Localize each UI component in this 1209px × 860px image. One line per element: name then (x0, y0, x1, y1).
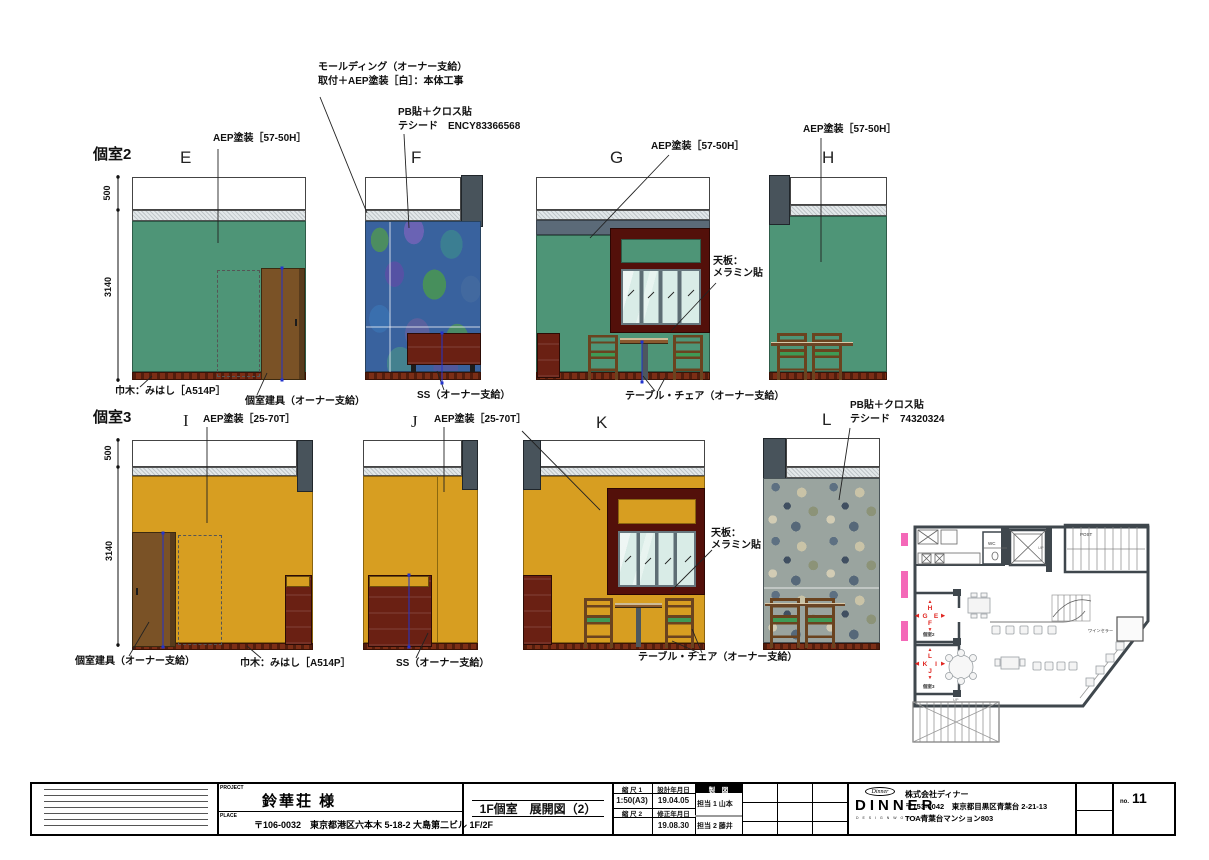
elevation-letter-f: F (411, 148, 421, 168)
scale1-value: 1:50(A3) (612, 793, 652, 808)
dim-500-room3: 500 (103, 445, 113, 460)
elevation-j (363, 440, 478, 650)
elevation-letter-k: K (596, 413, 607, 433)
staff1: 担当 1 山本 (695, 793, 742, 815)
column (462, 440, 478, 490)
window-glass (618, 531, 696, 587)
aep-note-g: AEP塗装［57-50H］ (651, 140, 744, 153)
elevation-letter-h: H (822, 148, 834, 168)
door-handle (295, 319, 297, 326)
divider (742, 784, 743, 834)
tall-cabinet (523, 575, 552, 645)
elevation-letter-i: I (183, 411, 189, 431)
table-pedestal (636, 608, 641, 647)
room2-section-label: 個室2 (93, 143, 131, 164)
elevation-letter-g: G (610, 148, 623, 168)
interior-window (607, 488, 705, 595)
scale2-label: 縮 尺 2 (612, 808, 652, 817)
project-label: PROJECT (220, 785, 244, 791)
revision-line (44, 819, 208, 820)
plan-up-label-2: UP (953, 697, 959, 702)
divider (1075, 784, 1077, 834)
revision-line (44, 813, 208, 814)
chair (588, 335, 618, 380)
elevation-letter-e: E (180, 148, 191, 168)
column (461, 175, 483, 227)
skirting (365, 372, 481, 380)
marker-arrow-left-room2: ◀ (914, 613, 919, 619)
plan-room3-label: 個室3 (922, 683, 935, 690)
ceiling-band (523, 440, 705, 467)
molding-note-line1: モールディング（オーナー支給） (318, 61, 467, 74)
divider (217, 784, 219, 834)
chair (673, 335, 703, 380)
marker-k: K (923, 661, 928, 668)
molding (365, 210, 461, 221)
floor-plan: POST UP UP WC ワインセラー 個室2 個室3 ▲ H ◀ G E ▶… (895, 505, 1185, 760)
place-address: 〒106-0032 東京都港区六本木 5-18-2 大島第二ビル 1F/2F (254, 818, 493, 831)
skirting-note-room3: 巾木：みはし［A514P］ (240, 657, 351, 670)
scale1-label: 縮 尺 1 (612, 784, 652, 793)
chair (812, 333, 842, 380)
counter-base (369, 576, 429, 587)
chair (665, 598, 694, 648)
elevation-g (536, 177, 710, 380)
table-edge (765, 603, 845, 606)
room3-section-label: 個室3 (93, 406, 131, 427)
sheet-no-value: 11 (1132, 790, 1147, 806)
low-cabinet (537, 333, 560, 378)
ceiling-band (790, 177, 887, 205)
molding (132, 210, 306, 221)
countertop-note-k-line2: メラミン貼 (711, 539, 761, 552)
design-date: 19.04.05 (652, 793, 695, 808)
title-block: PROJECT 鈴華荘 様 PLACE 〒106-0032 東京都港区六本木 5… (30, 782, 1176, 836)
project-name: 鈴華荘 様 (262, 790, 336, 811)
door-handle (136, 588, 138, 595)
aep-note-e: AEP塗装［57-50H］ (213, 132, 306, 145)
molding (536, 210, 710, 220)
elevation-i (132, 440, 313, 650)
rule (742, 802, 847, 803)
wall-seam (437, 477, 438, 643)
divider (847, 784, 849, 834)
company-logo-emblem: Dinner (865, 787, 895, 796)
aep-note-j: AEP塗装［25-70T］ (434, 413, 526, 426)
marker-arrow-left-room3: ◀ (914, 661, 919, 667)
marker-h: H (928, 605, 933, 612)
divider (777, 784, 778, 834)
interior-window (610, 228, 710, 333)
company-name: 株式会社ディナー (905, 789, 968, 800)
plan-up-label-1: UP (1038, 545, 1044, 550)
wallpaper-f-note-line2: テシード ENCY83366568 (398, 120, 520, 133)
ceiling-band (786, 438, 880, 467)
door-projection-dashed (178, 535, 222, 645)
divider (1112, 784, 1114, 834)
marker-e: E (934, 613, 939, 620)
revision-line (44, 825, 208, 826)
countertop-note-g-line2: メラミン貼 (713, 267, 763, 280)
revision-date: 19.08.30 (652, 817, 695, 834)
revision-date-label: 修正年月日 (652, 808, 695, 817)
chair (777, 333, 807, 380)
place-label: PLACE (220, 813, 237, 819)
elevation-e (132, 177, 306, 380)
molding (132, 467, 297, 476)
staff2: 担当 2 藤井 (695, 817, 742, 834)
revision-line (44, 789, 208, 790)
rule (1075, 810, 1112, 811)
ss-counter (407, 333, 481, 365)
window-glass (621, 269, 701, 325)
ss-note-room2: SS（オーナー支給） (417, 389, 510, 402)
marker-arrow-down-room2: ▼ (928, 627, 933, 633)
elevation-l (763, 438, 880, 650)
marker-l: L (928, 653, 932, 660)
ceiling-band (536, 177, 710, 210)
molding-note-line2: 取付＋AEP塗装［白］：本体工事 (318, 75, 464, 88)
elevation-f (365, 175, 483, 380)
marker-g: G (922, 613, 927, 620)
design-date-label: 設計年月日 (652, 784, 695, 793)
plan-wc-label: WC (988, 541, 996, 546)
ceiling-band (132, 177, 306, 210)
elevation-letter-j: J (411, 412, 418, 432)
marker-i: I (935, 661, 937, 668)
wallpaper-f-note-line1: PB貼＋クロス貼 (398, 106, 472, 119)
marker-arrow-down-room3: ▼ (928, 675, 933, 681)
revision-line (44, 807, 208, 808)
ceiling-band (132, 440, 297, 467)
door-note-room3: 個室建具（オーナー支給） (75, 655, 195, 668)
ss-note-room3: SS（オーナー支給） (396, 657, 489, 670)
drawing-sheet: 個室2 個室3 E F G H I J K L モールディング（オーナー支給） … (0, 0, 1209, 860)
plan-pink-accents (901, 533, 908, 641)
table-chair-note-room3: テーブル・チェア（オーナー支給） (638, 651, 797, 664)
rule (742, 821, 847, 822)
divider (812, 784, 813, 834)
divider (217, 811, 462, 812)
table-chair-note-room2: テーブル・チェア（オーナー支給） (625, 390, 784, 403)
elevation-k (523, 440, 705, 650)
company-address-1: 〒153-0042 東京都目黒区青葉台 2-21-13 (905, 801, 1047, 812)
table-edge (771, 342, 853, 346)
column (523, 440, 541, 490)
door-projection-dashed (217, 270, 260, 377)
dim-3140-room2: 3140 (103, 277, 113, 297)
dim-3140-room3: 3140 (104, 541, 114, 561)
wallpaper-l-note-line1: PB貼＋クロス貼 (850, 399, 924, 412)
drawing-title: 1F個室 展開図（2） (472, 799, 604, 817)
ceiling-band (363, 440, 462, 467)
elevation-h (769, 175, 887, 380)
drafting-label: 製 図 (695, 784, 742, 793)
window-transom (618, 499, 696, 524)
table-pedestal (642, 344, 648, 380)
skirting-note-room2: 巾木：みはし［A514P］ (115, 385, 226, 398)
aep-note-i: AEP塗装［25-70T］ (203, 413, 295, 426)
cabinet-base (286, 576, 310, 587)
molding (790, 205, 887, 216)
elevation-letter-l: L (822, 410, 831, 430)
marker-f: F (928, 620, 932, 627)
plan-post-label: POST (1080, 532, 1093, 537)
tall-cabinet (285, 575, 312, 645)
room-door (261, 268, 305, 380)
sheet-no-label: no. (1120, 799, 1129, 805)
marker-j: J (928, 668, 932, 675)
scale2-value (612, 817, 652, 834)
door-note-room2: 個室建具（オーナー支給） (245, 395, 365, 408)
molding (363, 467, 462, 476)
revision-line (44, 795, 208, 796)
molding (523, 467, 705, 476)
ss-counter (368, 575, 432, 647)
chair (584, 598, 613, 648)
ceiling-band (365, 177, 461, 210)
column (297, 440, 313, 492)
company-address-2: TOA青葉台マンション803 (905, 813, 993, 824)
window-transom (621, 239, 701, 263)
aep-note-h: AEP塗装［57-50H］ (803, 123, 896, 136)
dim-500-room2: 500 (102, 185, 112, 200)
column (769, 175, 790, 225)
wallpaper-l-note-line2: テシード 74320324 (850, 413, 945, 426)
room-door (132, 532, 176, 647)
revision-line (44, 801, 208, 802)
molding (786, 467, 880, 478)
